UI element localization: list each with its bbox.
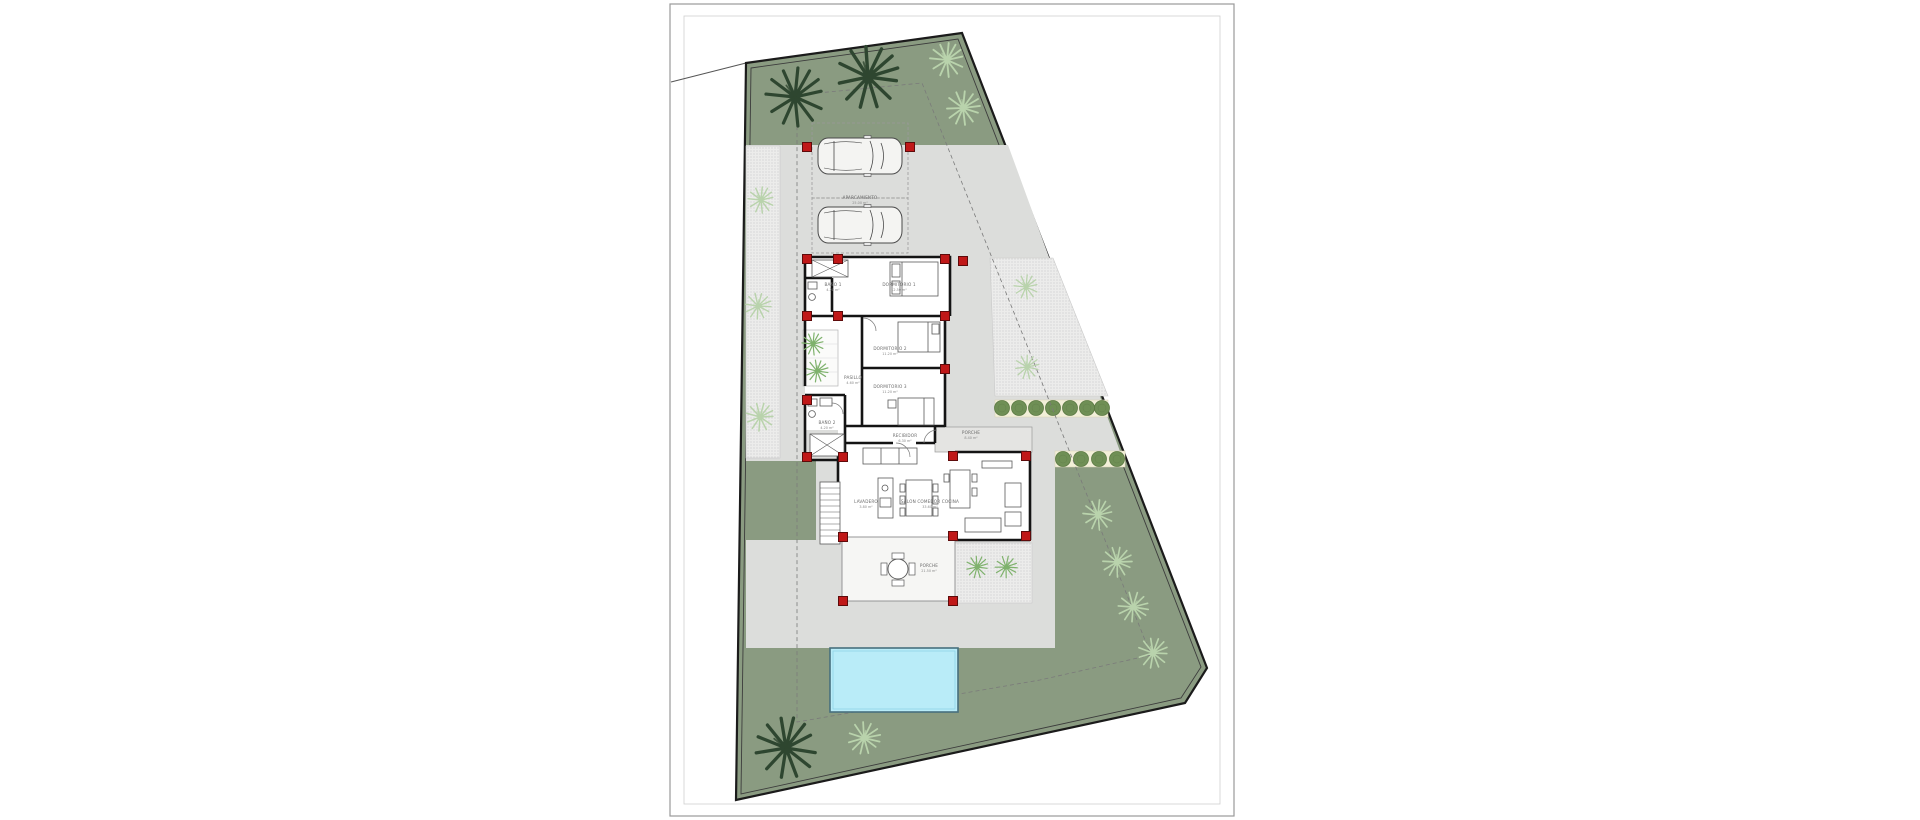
car-2 <box>818 205 902 246</box>
pergola-column <box>839 597 848 606</box>
label-bath2-area: 4.20 m² <box>820 426 834 430</box>
label-bedroom2-area: 11.20 m² <box>882 352 898 356</box>
label-rear-porch-area: 21.50 m² <box>921 569 937 573</box>
label-hallway-name: PASILLO <box>844 375 862 380</box>
site-plan-drawing: APARCAMIENTO 25.00 m² <box>0 0 1920 820</box>
label-bedroom2-name: DORMITORIO 2 <box>873 346 907 351</box>
label-parking-area: 25.00 m² <box>852 201 868 205</box>
swimming-pool <box>830 648 958 712</box>
label-parking-name: APARCAMIENTO <box>843 195 878 200</box>
label-living-area: 33.60 m² <box>922 505 938 509</box>
label-entry-porch-area: 8.40 m² <box>964 436 978 440</box>
label-entry-porch-name: PORCHE <box>962 430 980 435</box>
label-bedroom1-name: DORMITORIO 1 <box>882 282 916 287</box>
rear-porch <box>842 537 955 601</box>
left-lawn-patch <box>746 461 816 540</box>
label-living-name: SALON COMEDOR COCINA <box>901 499 959 504</box>
label-bedroom3-area: 11.20 m² <box>882 390 898 394</box>
label-rear-porch-name: PORCHE <box>920 563 938 568</box>
south-gravel-patch <box>955 543 1032 603</box>
label-laundry-area: 3.80 m² <box>859 505 873 509</box>
label-laundry-name: LAVADERO <box>854 499 878 504</box>
label-bath1-name: BAÑO 1 <box>824 282 841 287</box>
label-foyer-name: RECIBIDOR <box>893 433 918 438</box>
northeast-gravel-garden <box>990 258 1108 396</box>
car-1 <box>818 136 902 177</box>
label-hallway-area: 4.60 m² <box>846 381 860 385</box>
adjacent-boundary-line <box>671 63 746 82</box>
site-plan-sheet: APARCAMIENTO 25.00 m² <box>0 0 1920 820</box>
label-bath2-name: BAÑO 2 <box>818 420 835 425</box>
pergola-column <box>949 597 958 606</box>
label-bedroom1-area: 12.50 m² <box>891 288 907 292</box>
label-bedroom3-name: DORMITORIO 3 <box>873 384 907 389</box>
gate-column <box>906 143 915 152</box>
label-bath1-area: 4.20 m² <box>826 288 840 292</box>
gate-column <box>803 143 812 152</box>
entry-porch-floor <box>935 427 1032 452</box>
label-foyer-area: 6.30 m² <box>898 439 912 443</box>
